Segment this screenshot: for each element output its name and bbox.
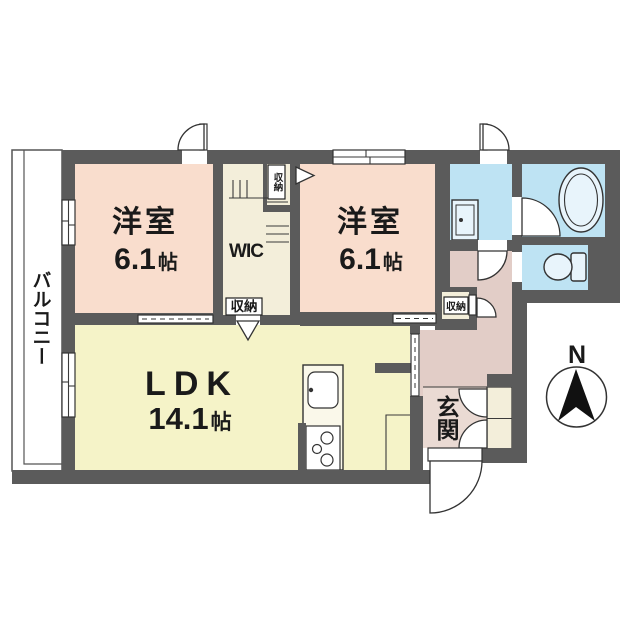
toilet-bowl <box>544 254 572 280</box>
wall-kitchen-nook-stub <box>375 363 411 373</box>
compass-north-label: N <box>568 341 586 369</box>
toilet-tank <box>571 253 586 281</box>
balcony-label: バルコニー <box>30 270 52 365</box>
wic-label: WIC <box>229 241 264 262</box>
bedroom1-name: 洋室 <box>112 205 178 239</box>
wall-kitchen-stub <box>298 423 306 470</box>
bedroom1-ldk-sliding-door <box>138 315 213 323</box>
wall-wic-bedroom2 <box>290 164 300 325</box>
wall-entrance-step-stub <box>487 374 520 387</box>
floorplan-page: 洋室 6.1帖 洋室 6.1帖 LDK 14.1帖 WIC バルコニー 玄関 収… <box>0 0 640 640</box>
kitchen-stove <box>306 426 340 470</box>
ldk-name: LDK <box>145 365 239 403</box>
entry-door-leaf <box>428 448 482 461</box>
bedroom1-unit: 帖 <box>158 251 178 274</box>
wall-toilet-right <box>588 245 605 290</box>
bathroom-door-opening <box>512 197 522 235</box>
wall-bedroom1-wic <box>213 164 223 325</box>
washroom-door-opening <box>478 240 507 251</box>
vanity-faucet <box>459 218 463 222</box>
bedroom1-area: 6.1 <box>114 243 156 276</box>
entrance-label: 玄関 <box>433 394 460 441</box>
wall-right <box>605 150 620 303</box>
ldk-floor <box>75 325 410 470</box>
wall-closet-horizontal <box>263 205 290 212</box>
ldk-area: 14.1 <box>148 401 208 436</box>
wall-ldk-hall-lower <box>410 396 423 470</box>
wall-bottom <box>12 470 432 484</box>
kitchen-faucet <box>309 388 313 392</box>
washroom-top-door-opening <box>480 150 507 164</box>
wall-bath-bottom <box>512 237 605 245</box>
toilet-door-opening <box>512 252 522 282</box>
ldk-unit: 帖 <box>211 411 232 434</box>
closet-label: 収納 <box>272 172 284 193</box>
bedroom1-door-opening <box>182 150 207 164</box>
bathtub <box>559 168 603 232</box>
wall-closet-vertical <box>263 164 267 212</box>
bedroom2-name: 洋室 <box>337 205 403 239</box>
wall-bottomright-horizontal <box>512 290 620 303</box>
floorplan-svg: 洋室 6.1帖 洋室 6.1帖 LDK 14.1帖 WIC バルコニー 玄関 収… <box>0 0 640 640</box>
wall-ldk-hall-upper <box>410 326 420 334</box>
bedroom2-unit: 帖 <box>383 251 403 274</box>
hall-closet-label: 収納 <box>446 300 466 313</box>
storage-label: 収納 <box>231 298 258 314</box>
wall-wic-ldk <box>223 315 300 325</box>
wall-entrance-bottom-stub <box>482 448 527 463</box>
bedroom2-area: 6.1 <box>339 243 381 276</box>
hall-closet-door-leaf <box>469 295 476 315</box>
